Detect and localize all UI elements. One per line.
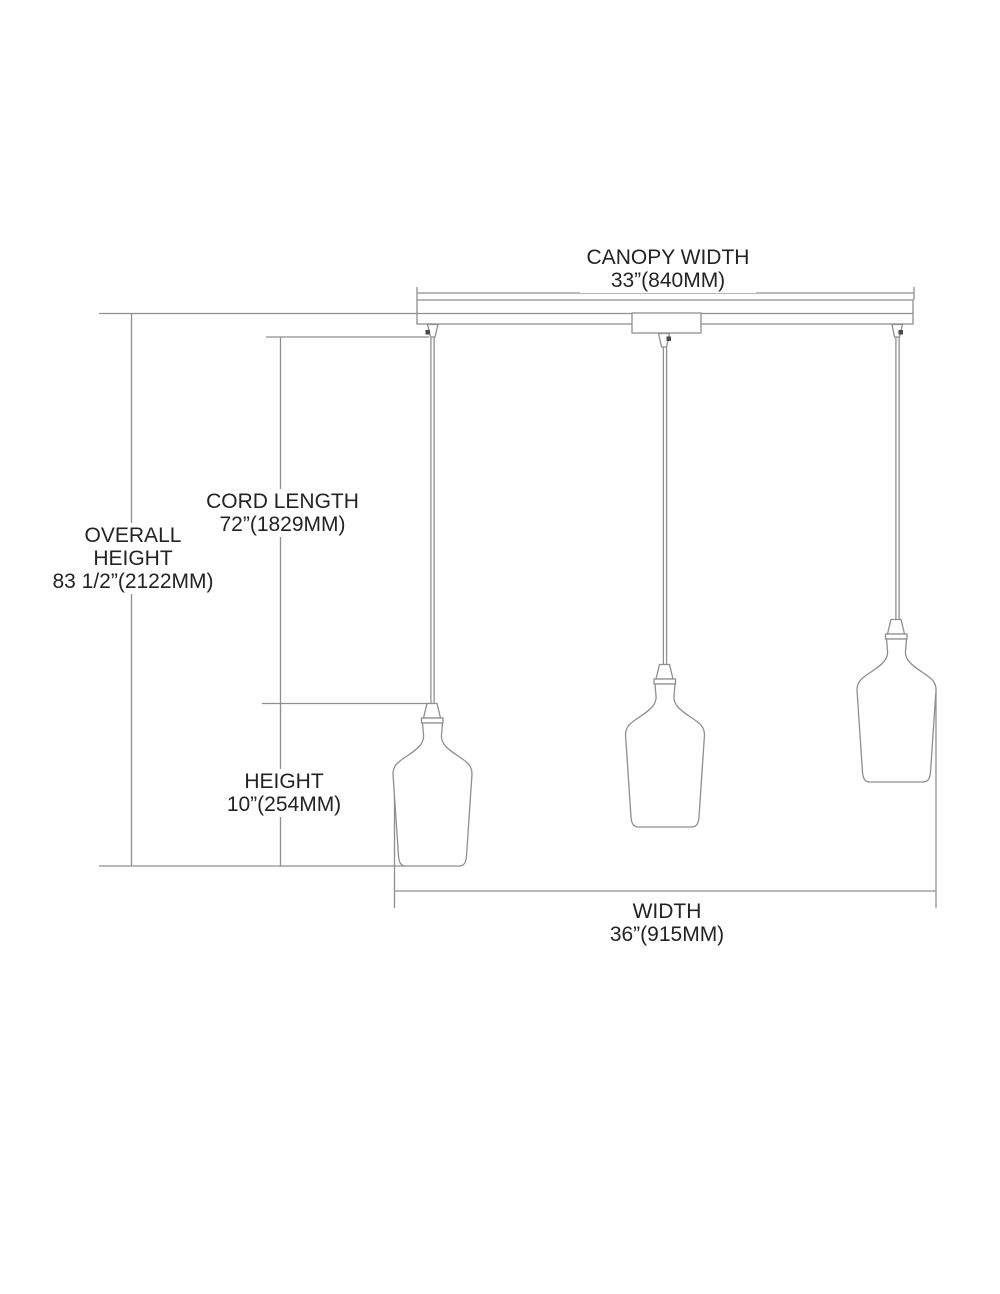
cord-grip-right [892, 325, 903, 338]
fixture-width-label: WIDTH 36”(915MM) [602, 899, 732, 947]
junction-box [632, 313, 701, 333]
fixture-height-label: HEIGHT 10”(254MM) [219, 769, 349, 817]
fixture-height-title: HEIGHT [221, 770, 347, 793]
fixture-width-title: WIDTH [604, 900, 730, 923]
cord-length-value: 72”(1829MM) [206, 513, 359, 536]
fixture-width-value: 36”(915MM) [604, 923, 730, 946]
dimension-drawing-page: CANOPY WIDTH 33”(840MM) CORD LENGTH 72”(… [0, 0, 1000, 1294]
cord-length-title: CORD LENGTH [206, 490, 359, 513]
cord-grip-left [426, 325, 439, 338]
overall-height-title-line2: HEIGHT [51, 547, 215, 570]
canopy-width-title: CANOPY WIDTH [582, 246, 754, 269]
pendant-center [626, 665, 705, 828]
canopy-width-value: 33”(840MM) [582, 269, 754, 292]
line-art [0, 0, 1000, 1294]
fixture-height-value: 10”(254MM) [221, 793, 347, 816]
cord-left [431, 337, 434, 704]
cord-right [896, 337, 899, 620]
overall-height-label: OVERALL HEIGHT 83 1/2”(2122MM) [49, 523, 217, 594]
overall-height-title-line1: OVERALL [51, 524, 215, 547]
cord-center [663, 347, 666, 665]
pendant-right [857, 620, 936, 783]
overall-height-value: 83 1/2”(2122MM) [51, 570, 215, 593]
pendant-left [393, 704, 472, 867]
canopy-width-label: CANOPY WIDTH 33”(840MM) [580, 245, 756, 293]
cord-length-label: CORD LENGTH 72”(1829MM) [204, 489, 361, 537]
cord-grip-center [659, 334, 672, 348]
